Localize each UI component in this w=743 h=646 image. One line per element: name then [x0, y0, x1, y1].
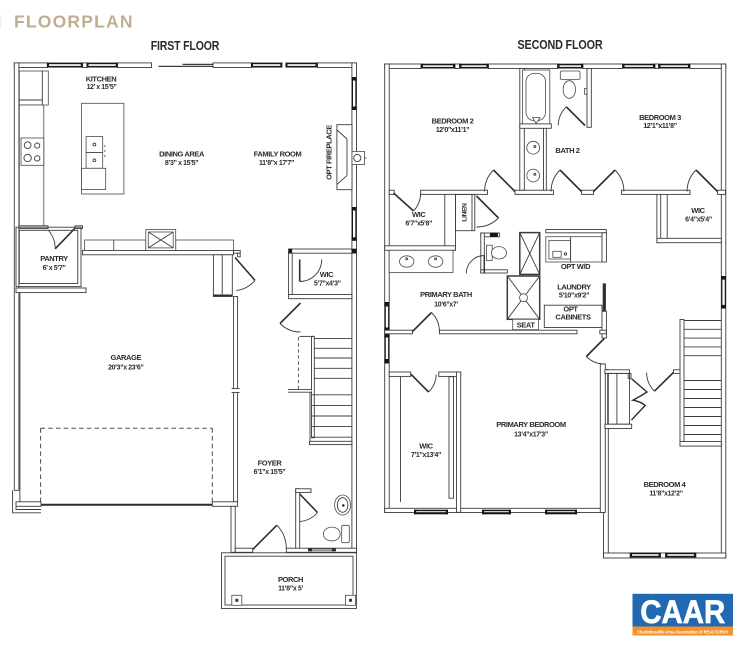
- svg-text:SEAT: SEAT: [517, 320, 536, 329]
- svg-text:LAUNDRY: LAUNDRY: [557, 282, 591, 291]
- svg-text:PRIMARY BATH: PRIMARY BATH: [420, 290, 472, 299]
- svg-text:OPT W/D: OPT W/D: [561, 262, 591, 271]
- svg-text:6’7”x5’8”: 6’7”x5’8”: [405, 220, 432, 227]
- svg-text:Charlottesville Area Associati: Charlottesville Area Association of REAL…: [637, 630, 729, 635]
- svg-text:WIC: WIC: [691, 206, 705, 215]
- svg-text:10’6”x7’: 10’6”x7’: [434, 301, 458, 308]
- svg-text:11’8”x 17’7”: 11’8”x 17’7”: [259, 160, 294, 167]
- svg-text:6’1”x 15’5”: 6’1”x 15’5”: [254, 469, 286, 476]
- svg-text:FLOORPLAN: FLOORPLAN: [14, 12, 134, 32]
- svg-text:11’8”x12’2”: 11’8”x12’2”: [649, 491, 682, 498]
- svg-text:BATH 2: BATH 2: [555, 146, 579, 155]
- svg-text:6’4”x5’4”: 6’4”x5’4”: [685, 216, 712, 223]
- svg-text:WIC: WIC: [320, 270, 334, 279]
- svg-text:WIC: WIC: [419, 442, 433, 451]
- svg-text:13’4”x17’3”: 13’4”x17’3”: [514, 431, 548, 438]
- svg-text:KITCHEN: KITCHEN: [86, 75, 117, 84]
- svg-text:DINING AREA: DINING AREA: [159, 150, 205, 159]
- svg-text:PANTRY: PANTRY: [40, 254, 68, 263]
- svg-text:FIRST FLOOR: FIRST FLOOR: [151, 38, 220, 53]
- svg-text:PRIMARY BEDROOM: PRIMARY BEDROOM: [496, 420, 566, 429]
- svg-text:BEDROOM 3: BEDROOM 3: [639, 113, 681, 122]
- svg-text:12’ x 15’5”: 12’ x 15’5”: [87, 84, 117, 91]
- svg-text:BEDROOM 4: BEDROOM 4: [644, 480, 687, 489]
- svg-text:7’1”x13’4”: 7’1”x13’4”: [411, 452, 441, 459]
- svg-text:OPT FIREPLACE: OPT FIREPLACE: [325, 125, 334, 180]
- svg-text:SECOND FLOOR: SECOND FLOOR: [518, 37, 604, 52]
- svg-text:CABINETS: CABINETS: [555, 313, 591, 322]
- svg-text:20’3”x 23’6”: 20’3”x 23’6”: [108, 365, 143, 372]
- svg-text:6’ x 5’7”: 6’ x 5’7”: [43, 265, 66, 272]
- svg-text:PORCH: PORCH: [278, 575, 303, 584]
- svg-text:12’1”x11’8”: 12’1”x11’8”: [643, 123, 676, 130]
- svg-text:5’10”x9’2”: 5’10”x9’2”: [559, 293, 589, 300]
- svg-text:CAAR: CAAR: [640, 594, 725, 630]
- svg-text:5’7”x4’3”: 5’7”x4’3”: [314, 280, 341, 287]
- svg-text:FAMILY ROOM: FAMILY ROOM: [254, 150, 302, 159]
- svg-text:8’3” x 15’5”: 8’3” x 15’5”: [165, 160, 198, 167]
- svg-text:11’8”x 5’: 11’8”x 5’: [278, 586, 303, 593]
- svg-text:LINEN: LINEN: [462, 203, 469, 222]
- svg-text:WIC: WIC: [412, 210, 426, 219]
- svg-text:12’0”x11’1”: 12’0”x11’1”: [436, 127, 469, 134]
- svg-text:BEDROOM 2: BEDROOM 2: [432, 117, 474, 126]
- svg-text:FOYER: FOYER: [258, 459, 283, 468]
- svg-text:GARAGE: GARAGE: [111, 353, 142, 362]
